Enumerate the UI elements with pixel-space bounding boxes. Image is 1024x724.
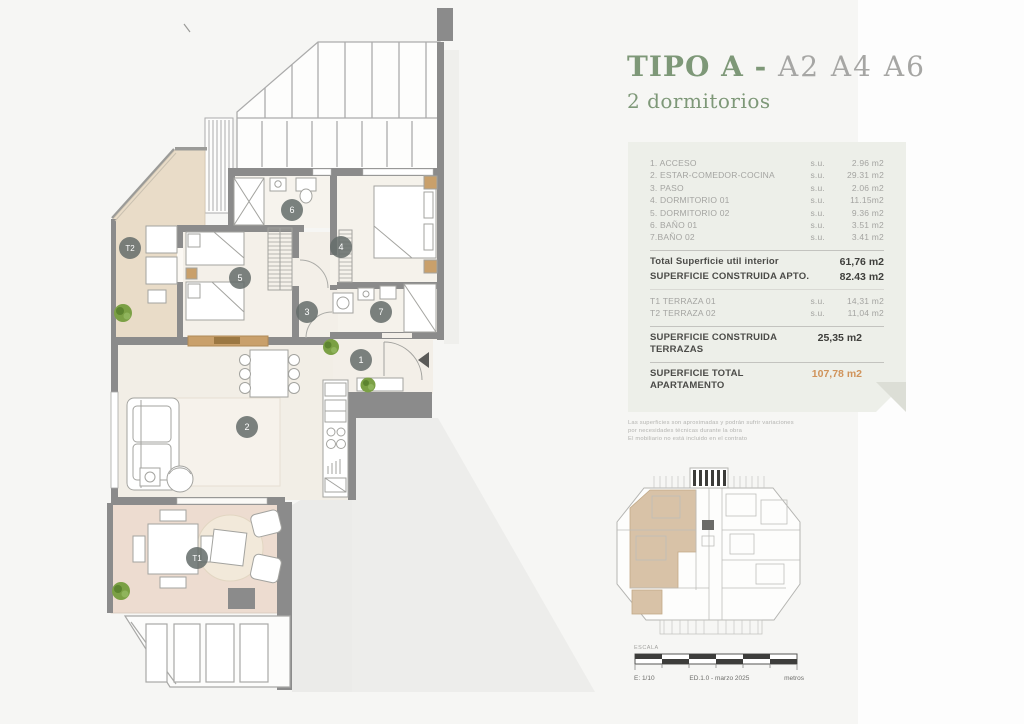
areas-summary-card: 1. ACCESOs.u.2.96 m22. ESTAR-COMEDOR-COC… <box>628 142 906 412</box>
area-row: 4. DORMITORIO 01s.u.11.15m2 <box>650 194 884 206</box>
bottom-lattice <box>125 616 290 687</box>
terrace-list: T1 TERRAZA 01s.u.14,31 m2T2 TERRAZA 02s.… <box>650 295 884 320</box>
room-badge-2: 2 <box>236 416 258 438</box>
construida-apto-row: SUPERFICIE CONSTRUIDA APTO. 82.43 m2 <box>650 271 884 283</box>
construida-terrazas-label: SUPERFICIE CONSTRUIDA TERRAZAS <box>650 332 800 356</box>
construida-terrazas-value: 25,35 m2 <box>800 332 862 344</box>
scale-bar-graphic <box>634 653 800 671</box>
title-main: TIPO A <box>627 50 744 83</box>
total-apartamento-row: SUPERFICIE TOTAL APARTAMENTO 107,78 m2 <box>650 368 884 392</box>
disclaimer: Las superficies son aproximadas y podrán… <box>628 419 794 443</box>
divider <box>650 326 884 327</box>
area-row: 6. BAÑO 01s.u.3.51 m2 <box>650 219 884 231</box>
area-row: 2. ESTAR-COMEDOR-COCINAs.u.29.31 m2 <box>650 169 884 181</box>
svg-text:3: 3 <box>304 307 309 317</box>
card-fold-corner <box>876 382 906 412</box>
total-util-row: Total Superficie util interior 61,76 m2 <box>650 256 884 268</box>
page-title: TIPO A - A2 A4 A6 <box>627 50 926 83</box>
divider <box>650 250 884 251</box>
scale-units: metros <box>784 675 804 682</box>
total-util-label: Total Superficie util interior <box>650 256 822 268</box>
room-badge-1: 1 <box>350 349 372 371</box>
room-badge-5: 5 <box>229 267 251 289</box>
construida-terrazas-row: SUPERFICIE CONSTRUIDA TERRAZAS 25,35 m2 <box>650 332 884 356</box>
scale-ratio: E: 1/10 <box>634 675 655 682</box>
room-badge-T2: T2 <box>119 237 141 259</box>
svg-text:T2: T2 <box>125 244 135 253</box>
scale-bar-labels: E: 1/10 ED.1.0 - marzo 2025 metros <box>634 675 804 682</box>
disclaimer-line: El mobiliario no está incluido en el con… <box>628 435 794 443</box>
svg-text:7: 7 <box>378 307 383 317</box>
room-badge-6: 6 <box>281 199 303 221</box>
svg-text:T1: T1 <box>192 554 202 563</box>
disclaimer-line: Las superficies son aproximadas y podrán… <box>628 419 794 427</box>
svg-text:5: 5 <box>237 273 242 283</box>
area-row: 7.BAÑO 02s.u.3.41 m2 <box>650 231 884 243</box>
area-row: T2 TERRAZA 02s.u.11,04 m2 <box>650 307 884 319</box>
floor-plan: 1234567T1T2 <box>0 0 620 724</box>
area-row: T1 TERRAZA 01s.u.14,31 m2 <box>650 295 884 307</box>
scale-bar-title: ESCALA <box>634 645 804 651</box>
total-util-value: 61,76 m2 <box>822 256 884 268</box>
title-units: A2 A4 A6 <box>778 50 926 83</box>
title-separator: - <box>744 50 778 83</box>
room-badge-3: 3 <box>296 301 318 323</box>
svg-text:2: 2 <box>244 422 249 432</box>
disclaimer-line: por necesidades técnicas durante la obra <box>628 427 794 435</box>
room-badge-7: 7 <box>370 301 392 323</box>
construida-apto-value: 82.43 m2 <box>822 271 884 283</box>
kitchen-counter <box>323 380 348 497</box>
room-badge-T1: T1 <box>186 547 208 569</box>
area-row: 5. DORMITORIO 02s.u.9.36 m2 <box>650 207 884 219</box>
scale-edition: ED.1.0 - marzo 2025 <box>689 675 749 682</box>
divider <box>650 289 884 290</box>
key-plan <box>606 460 811 648</box>
key-plan-highlight-terrace <box>632 590 662 614</box>
total-apartamento-label: SUPERFICIE TOTAL APARTAMENTO <box>650 368 800 392</box>
room-badge-4: 4 <box>330 236 352 258</box>
area-row: 3. PASOs.u.2.06 m2 <box>650 182 884 194</box>
construida-apto-label: SUPERFICIE CONSTRUIDA APTO. <box>650 271 822 283</box>
page-subtitle: 2 dormitorios <box>627 89 926 113</box>
pergola-top <box>237 42 440 170</box>
divider <box>650 362 884 363</box>
svg-text:6: 6 <box>289 205 294 215</box>
area-row: 1. ACCESOs.u.2.96 m2 <box>650 157 884 169</box>
total-apartamento-value: 107,78 m2 <box>800 368 862 380</box>
svg-text:4: 4 <box>338 242 343 252</box>
room-list: 1. ACCESOs.u.2.96 m22. ESTAR-COMEDOR-COC… <box>650 157 884 244</box>
scale-bar: ESCALA E: 1/10 ED.1.0 - marzo 2025 metro… <box>634 645 804 682</box>
svg-text:1: 1 <box>358 355 363 365</box>
title-block: TIPO A - A2 A4 A6 2 dormitorios <box>627 50 926 113</box>
